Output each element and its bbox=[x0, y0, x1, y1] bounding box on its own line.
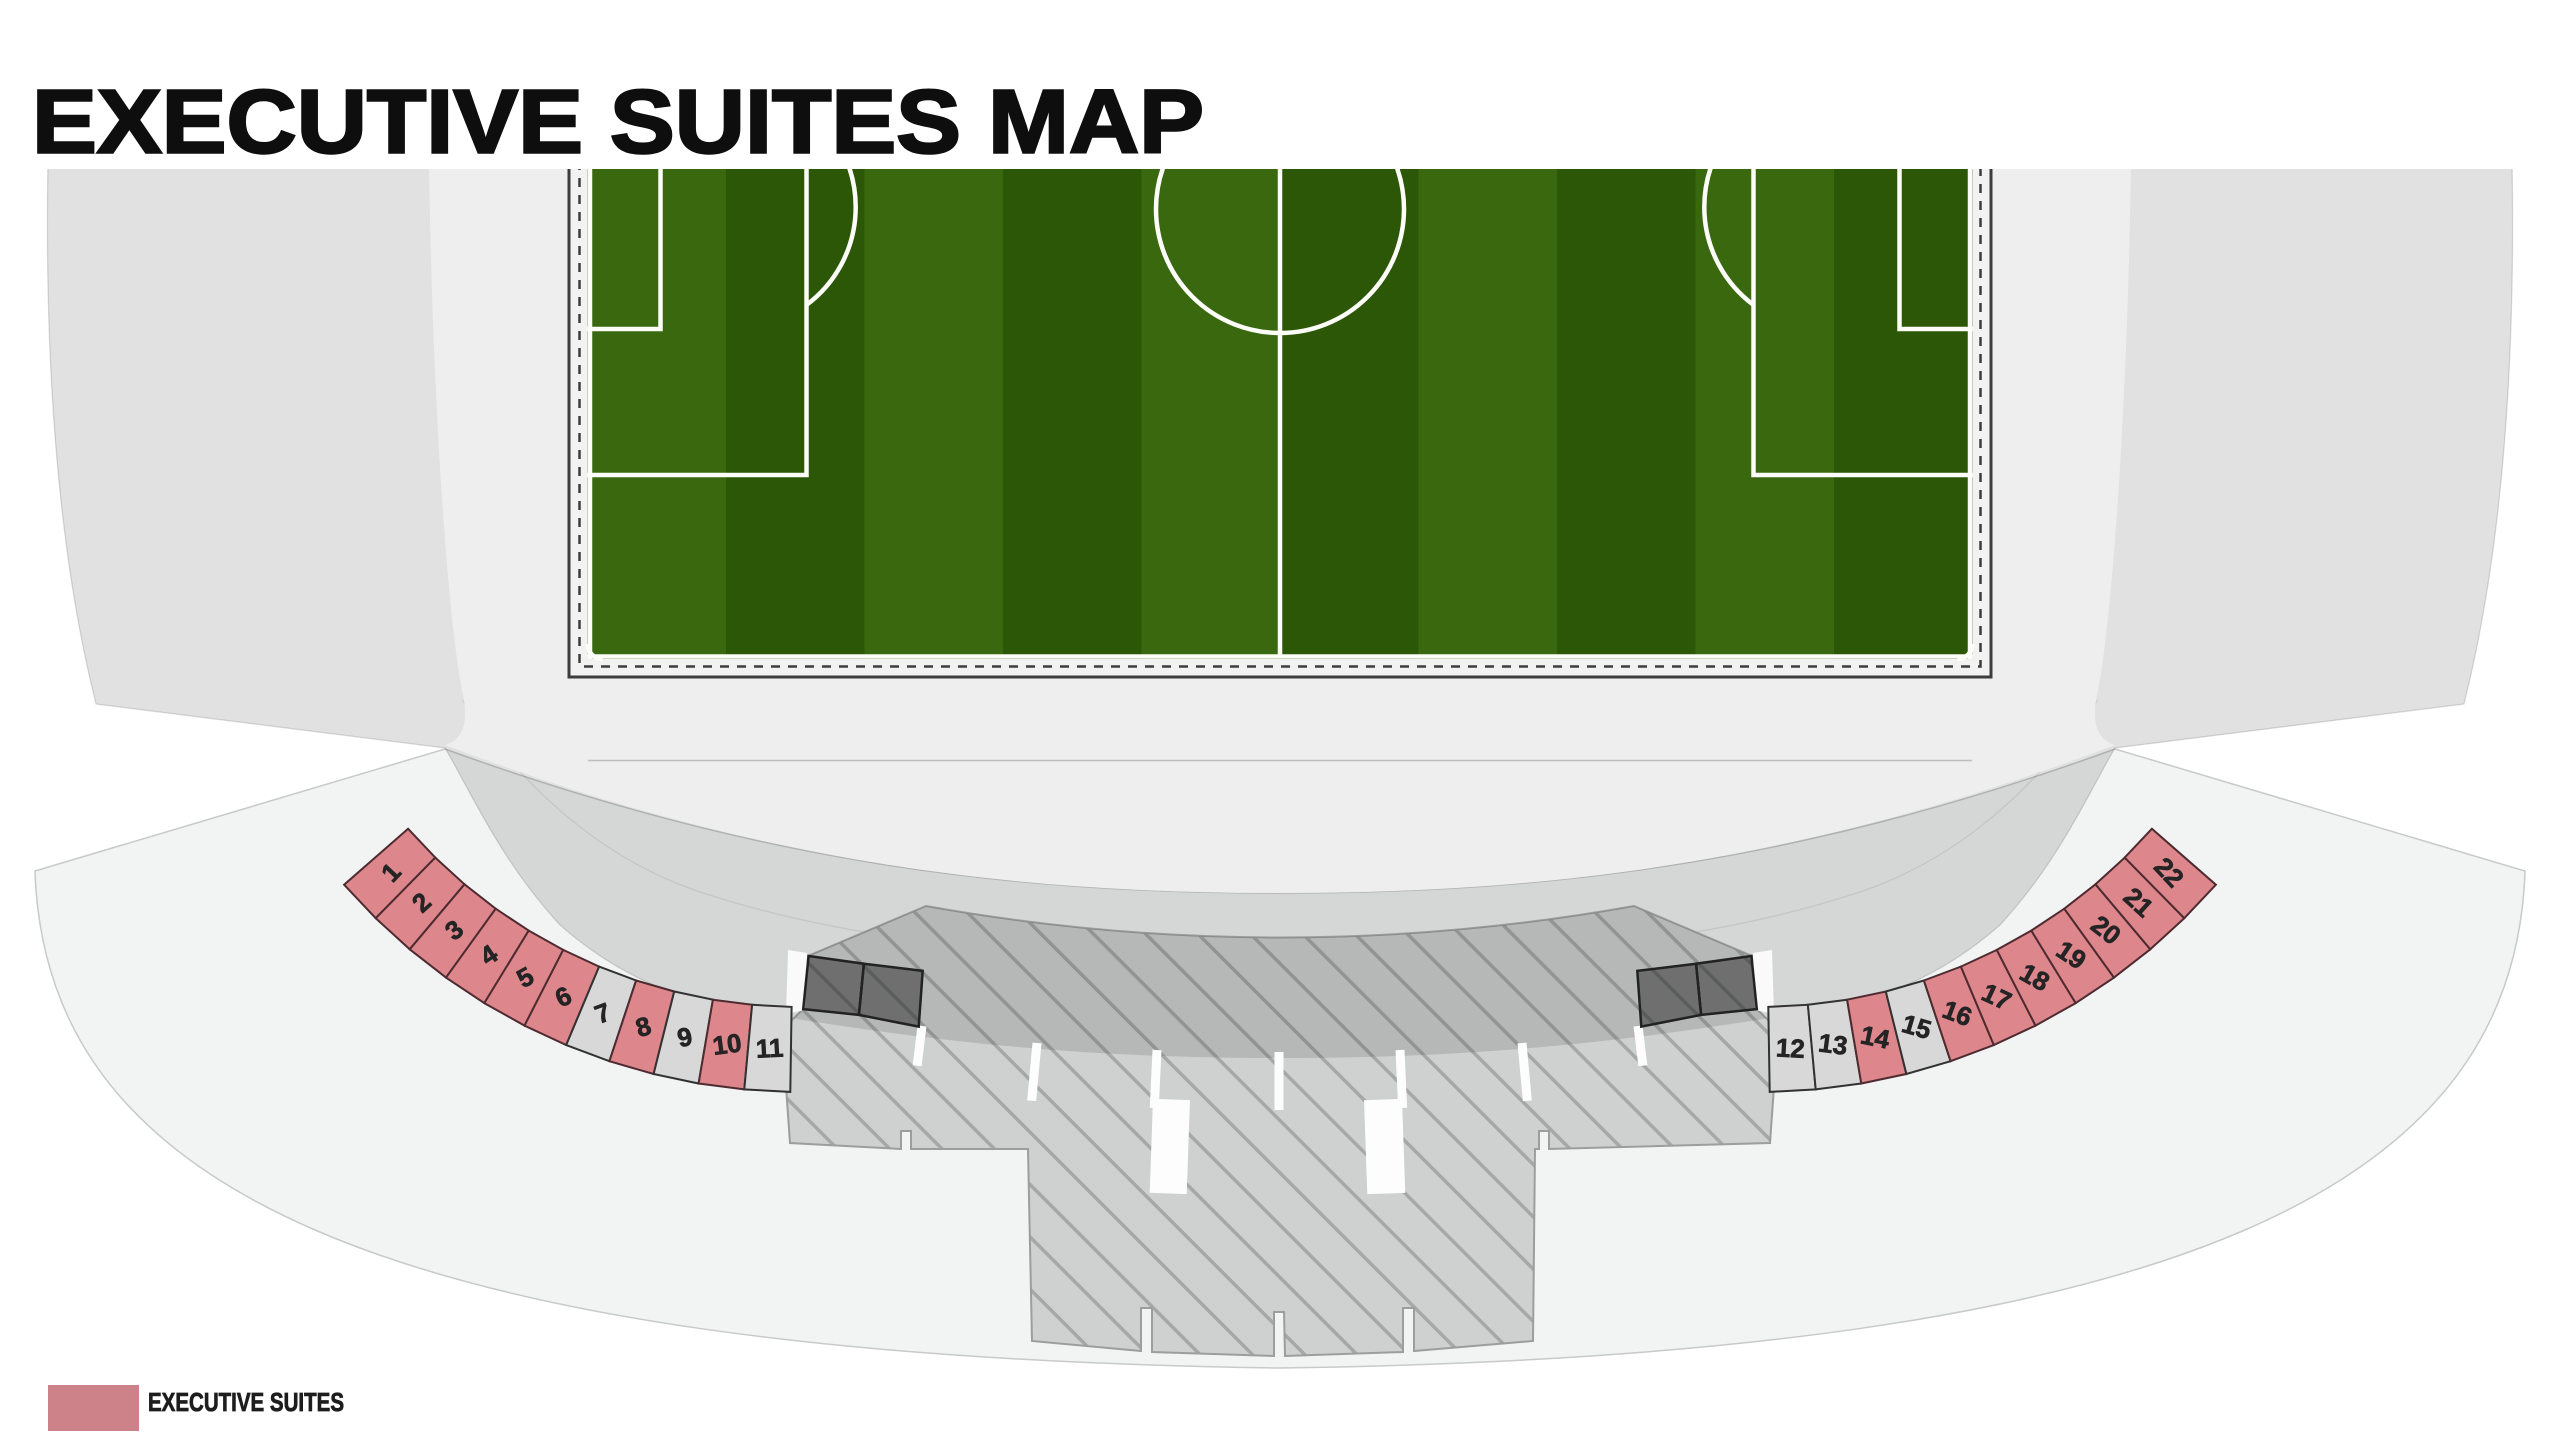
svg-text:10: 10 bbox=[711, 1027, 744, 1061]
svg-text:11: 11 bbox=[755, 1032, 784, 1063]
svg-text:12: 12 bbox=[1775, 1032, 1806, 1064]
svg-text:13: 13 bbox=[1817, 1027, 1850, 1061]
svg-text:EXECUTIVE SUITES: EXECUTIVE SUITES bbox=[148, 1387, 344, 1417]
svg-text:EXECUTIVE SUITES MAP: EXECUTIVE SUITES MAP bbox=[32, 73, 1204, 173]
